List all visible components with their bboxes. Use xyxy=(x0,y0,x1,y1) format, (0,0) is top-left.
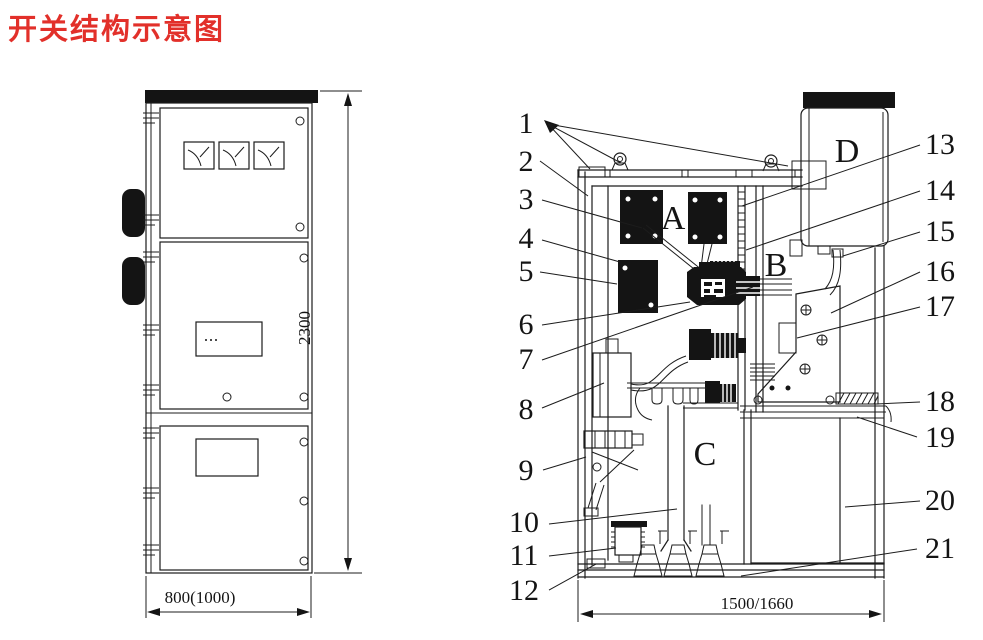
leader-14 xyxy=(746,191,920,250)
callout-13: 13 xyxy=(925,128,955,161)
leader-2 xyxy=(540,161,588,196)
front-width-dimension: 800(1000) xyxy=(146,576,311,618)
callout-4: 4 xyxy=(519,222,534,255)
callout-19: 19 xyxy=(925,421,955,454)
meter-icon xyxy=(254,142,284,169)
leader-15 xyxy=(843,232,920,256)
screw-icon xyxy=(801,305,811,315)
compartment-label-d: D xyxy=(835,133,860,170)
busbar-panel xyxy=(620,190,663,244)
front-door-middle xyxy=(160,242,308,409)
callout-9: 9 xyxy=(519,454,534,487)
schematic-page: 开关结构示意图 xyxy=(0,0,983,640)
callout-18: 18 xyxy=(925,385,955,418)
door-handle xyxy=(122,189,145,237)
front-door-top xyxy=(160,108,308,238)
leader-1b xyxy=(548,124,621,163)
busbar-panel xyxy=(618,260,658,313)
callout-1: 1 xyxy=(519,107,534,140)
schematic-drawing: 2300 800(1000) xyxy=(0,0,983,640)
leader-17 xyxy=(797,307,920,338)
meter-icon xyxy=(184,142,214,169)
instrument-box xyxy=(593,339,688,417)
compartment-label-c: C xyxy=(694,436,717,473)
lifting-eye-icon xyxy=(612,153,628,170)
cable-duct xyxy=(661,406,710,551)
leader-6 xyxy=(542,302,690,325)
leader-1-arrow xyxy=(544,120,559,133)
compartment-label-b: B xyxy=(765,247,788,284)
front-top-cap xyxy=(145,90,318,103)
inspection-window xyxy=(196,439,258,476)
leader-20 xyxy=(845,501,920,507)
lv-box-cap xyxy=(803,92,895,108)
mid-partition xyxy=(756,186,763,412)
cabinet-floor xyxy=(578,564,884,577)
callout-5: 5 xyxy=(519,255,534,288)
low-voltage-box xyxy=(790,92,895,295)
support-insulator-icon xyxy=(696,531,729,576)
leader-1c xyxy=(548,124,788,166)
callout-2: 2 xyxy=(519,145,534,178)
callout-6: 6 xyxy=(519,308,534,341)
front-door-bottom xyxy=(160,426,308,570)
front-height-dimension: 2300 xyxy=(295,91,362,573)
callout-15: 15 xyxy=(925,215,955,248)
callout-11: 11 xyxy=(510,539,539,572)
leader-9 xyxy=(543,457,586,470)
front-body xyxy=(146,103,312,573)
bushing-insulator xyxy=(705,381,736,403)
side-view: 1500/1660 A B C D xyxy=(578,92,895,622)
screw-icon xyxy=(800,364,810,374)
callout-14: 14 xyxy=(925,174,955,207)
nameplate xyxy=(196,322,262,356)
meter-icon xyxy=(219,142,249,169)
busbar-panel xyxy=(688,192,727,244)
support-insulator-icon xyxy=(634,531,667,576)
screw-icon xyxy=(817,335,827,345)
height-dim-label: 2300 xyxy=(295,311,314,345)
bushing-insulator xyxy=(689,329,746,360)
leader-19 xyxy=(857,417,917,437)
callout-21: 21 xyxy=(925,532,955,565)
callout-16: 16 xyxy=(925,255,955,288)
leader-8 xyxy=(542,383,604,408)
current-transformer xyxy=(611,521,647,562)
callout-3: 3 xyxy=(519,183,534,216)
rear-compartment xyxy=(744,410,884,564)
callout-20: 20 xyxy=(925,484,955,517)
leader-18 xyxy=(876,402,920,404)
callout-12: 12 xyxy=(509,574,539,607)
compartment-label-a: A xyxy=(661,200,686,237)
support-insulator-icon xyxy=(664,531,697,576)
side-width-dim-label: 1500/1660 xyxy=(721,594,794,613)
leader-13 xyxy=(742,145,920,206)
front-view: 2300 800(1000) xyxy=(122,90,362,618)
leader-11 xyxy=(549,548,616,556)
callout-10: 10 xyxy=(509,506,539,539)
width-dim-label: 800(1000) xyxy=(165,588,236,607)
side-width-dimension: 1500/1660 xyxy=(578,580,884,622)
callout-8: 8 xyxy=(519,393,534,426)
callout-17: 17 xyxy=(925,290,955,323)
callout-7: 7 xyxy=(519,343,534,376)
door-handle xyxy=(122,257,145,305)
operating-mechanism xyxy=(584,431,643,516)
